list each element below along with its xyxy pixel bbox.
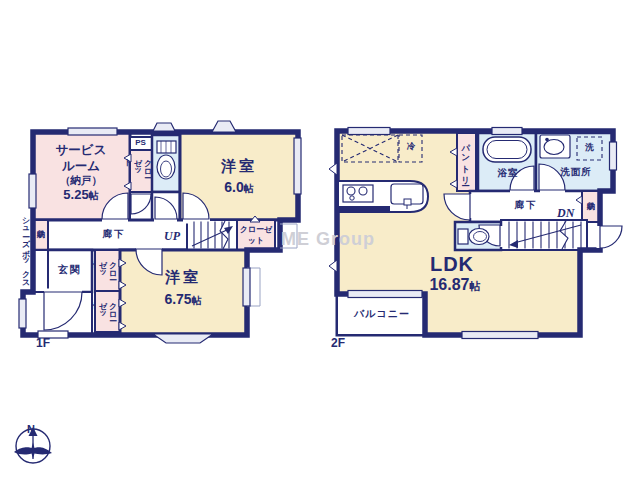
window-bay	[212, 121, 236, 132]
window	[462, 332, 538, 339]
window	[610, 142, 617, 170]
bedroom-60-name: 洋室	[204, 157, 274, 176]
window	[294, 138, 301, 194]
pantry-label: パントリー	[459, 138, 473, 192]
washroom-label: 洗面所	[549, 166, 603, 178]
shoes-box-label: シューズボックス	[19, 212, 31, 296]
corridor-1f-label: 廊下	[94, 228, 134, 240]
stairs-up-label: UP	[164, 229, 180, 244]
door-arc	[600, 226, 622, 248]
window	[492, 128, 522, 135]
service-room-line3: （納戸）	[36, 174, 126, 187]
stove-icon	[343, 185, 373, 202]
window	[29, 174, 36, 208]
ldk-size: 16.87帖	[407, 275, 503, 295]
service-room-label: サービス ルーム （納戸） 5.25帖	[36, 143, 126, 204]
corridor-2f-label: 廊下	[506, 199, 546, 211]
bedroom-60-size: 6.0帖	[204, 179, 274, 197]
window	[68, 128, 117, 135]
closet-b-label: クローゼット	[96, 296, 117, 326]
floor2-label: 2F	[331, 336, 345, 351]
bedroom-675-name: 洋室	[148, 268, 218, 287]
service-room-line1: サービス	[36, 143, 126, 159]
toilet-icon	[157, 141, 176, 179]
washbasin-icon	[540, 135, 570, 158]
toilet-icon	[458, 229, 489, 245]
washer-label: 洗	[577, 142, 602, 153]
bathroom-label: 浴室	[489, 167, 527, 179]
ldk-name: LDK	[412, 252, 492, 277]
ps-label: PS	[129, 138, 152, 148]
watermark: ME Group	[281, 229, 375, 250]
window-bay	[153, 334, 213, 343]
balcony-label: バルコニー	[350, 308, 414, 321]
bedroom-675-size: 6.75帖	[148, 291, 218, 309]
storage-2f-label: 収納	[584, 195, 597, 221]
closet-strip-label: クローゼット	[131, 153, 152, 183]
entrance-label: 玄関	[50, 264, 90, 277]
service-room-size: 5.25帖	[36, 187, 126, 203]
service-room-line2: ルーム	[36, 159, 126, 175]
window-bay	[153, 123, 175, 131]
closet-a-label: クローゼット	[96, 255, 117, 285]
compass-north-label: N	[27, 423, 35, 437]
bathtub-icon	[483, 137, 531, 162]
stairs-closet-label: クローゼット	[239, 224, 273, 246]
window	[19, 299, 26, 328]
floorplan-canvas: サービス ルーム （納戸） 5.25帖 PS クローゼット 洋室 6.0帖 廊下…	[0, 0, 640, 480]
window	[348, 128, 390, 135]
storage-1f-label: 収納	[34, 223, 47, 249]
stairs-down-label: DN	[557, 206, 574, 221]
floor1-label: 1F	[36, 336, 50, 351]
fridge-label: 冷	[399, 141, 423, 152]
window	[243, 268, 250, 306]
